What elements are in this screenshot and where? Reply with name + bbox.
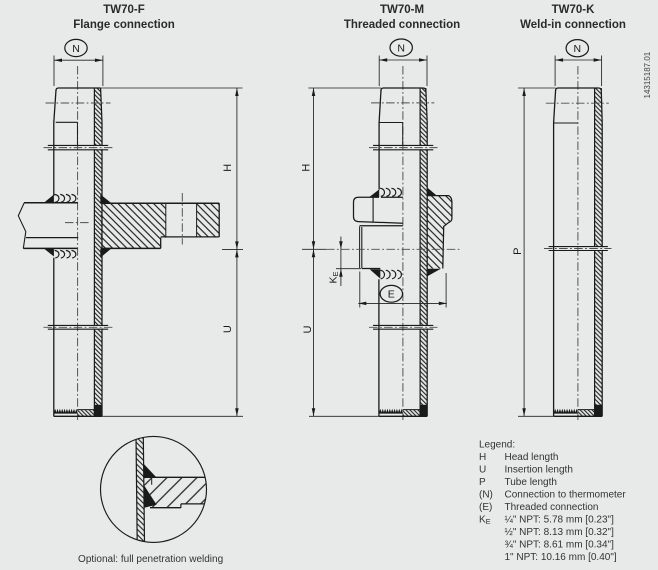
- svg-text:Tube length: Tube length: [505, 477, 557, 488]
- svg-text:N: N: [72, 43, 80, 55]
- svg-text:Connection to thermometer: Connection to thermometer: [505, 490, 627, 501]
- svg-text:H: H: [222, 164, 234, 172]
- svg-text:14315187.01: 14315187.01: [643, 51, 652, 98]
- svg-text:(N): (N): [479, 490, 493, 501]
- svg-text:P: P: [512, 248, 524, 255]
- svg-text:Legend:: Legend:: [479, 439, 515, 450]
- svg-text:Head length: Head length: [505, 452, 559, 463]
- svg-text:¼" NPT: 5.78 mm [0.23"]: ¼" NPT: 5.78 mm [0.23"]: [505, 514, 615, 526]
- svg-text:P: P: [479, 477, 486, 488]
- svg-text:E: E: [388, 289, 395, 301]
- svg-text:Threaded connection: Threaded connection: [505, 502, 599, 513]
- svg-text:H: H: [479, 452, 486, 463]
- svg-text:½" NPT: 8.13 mm [0.32"]: ½" NPT: 8.13 mm [0.32"]: [505, 527, 615, 538]
- svg-text:Weld-in connection: Weld-in connection: [520, 19, 626, 31]
- svg-text:1" NPT: 10.16 mm [0.40"]: 1" NPT: 10.16 mm [0.40"]: [505, 552, 617, 563]
- svg-text:(E): (E): [479, 502, 492, 513]
- svg-text:TW70-F: TW70-F: [103, 4, 145, 16]
- svg-text:TW70-M: TW70-M: [380, 4, 424, 16]
- svg-text:¾" NPT: 8.61 mm [0.34"]: ¾" NPT: 8.61 mm [0.34"]: [505, 540, 615, 551]
- svg-text:U: U: [302, 325, 314, 333]
- svg-text:H: H: [300, 164, 312, 172]
- svg-text:Optional: full penetration wel: Optional: full penetration welding: [78, 554, 223, 565]
- svg-text:U: U: [222, 325, 234, 333]
- svg-text:TW70-K: TW70-K: [552, 4, 596, 16]
- svg-text:N: N: [574, 43, 582, 55]
- svg-text:Insertion length: Insertion length: [505, 464, 573, 475]
- svg-text:Threaded connection: Threaded connection: [344, 19, 460, 31]
- svg-text:Flange connection: Flange connection: [73, 19, 175, 31]
- svg-text:N: N: [397, 43, 405, 55]
- svg-text:KE: KE: [479, 515, 491, 527]
- svg-text:U: U: [479, 464, 486, 475]
